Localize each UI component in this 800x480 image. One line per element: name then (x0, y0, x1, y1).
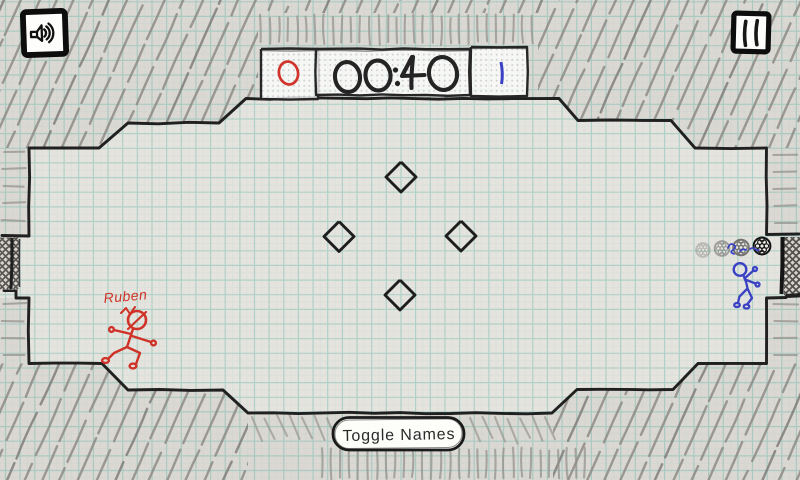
svg-text:Toggle Names: Toggle Names (342, 426, 454, 445)
